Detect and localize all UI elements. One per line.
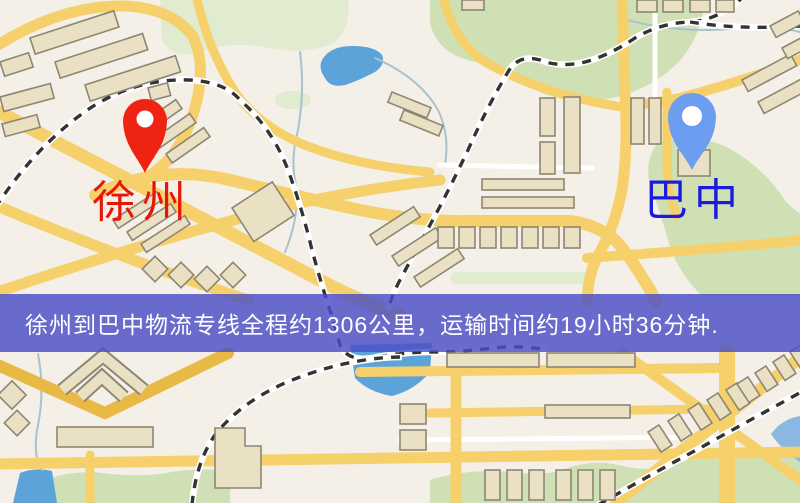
route-info-banner: 徐州到巴中物流专线全程约1306公里，运输时间约19小时36分钟. xyxy=(0,294,800,352)
map-screenshot: 徐州 巴中 徐州到巴中物流专线全程约1306公里，运输时间约19小时36分钟. xyxy=(0,0,800,503)
destination-city-label: 巴中 xyxy=(644,179,744,223)
map-background xyxy=(0,0,800,503)
route-info-text: 徐州到巴中物流专线全程约1306公里，运输时间约19小时36分钟. xyxy=(25,306,719,340)
origin-city-label: 徐州 xyxy=(92,181,192,225)
lake xyxy=(321,46,384,86)
